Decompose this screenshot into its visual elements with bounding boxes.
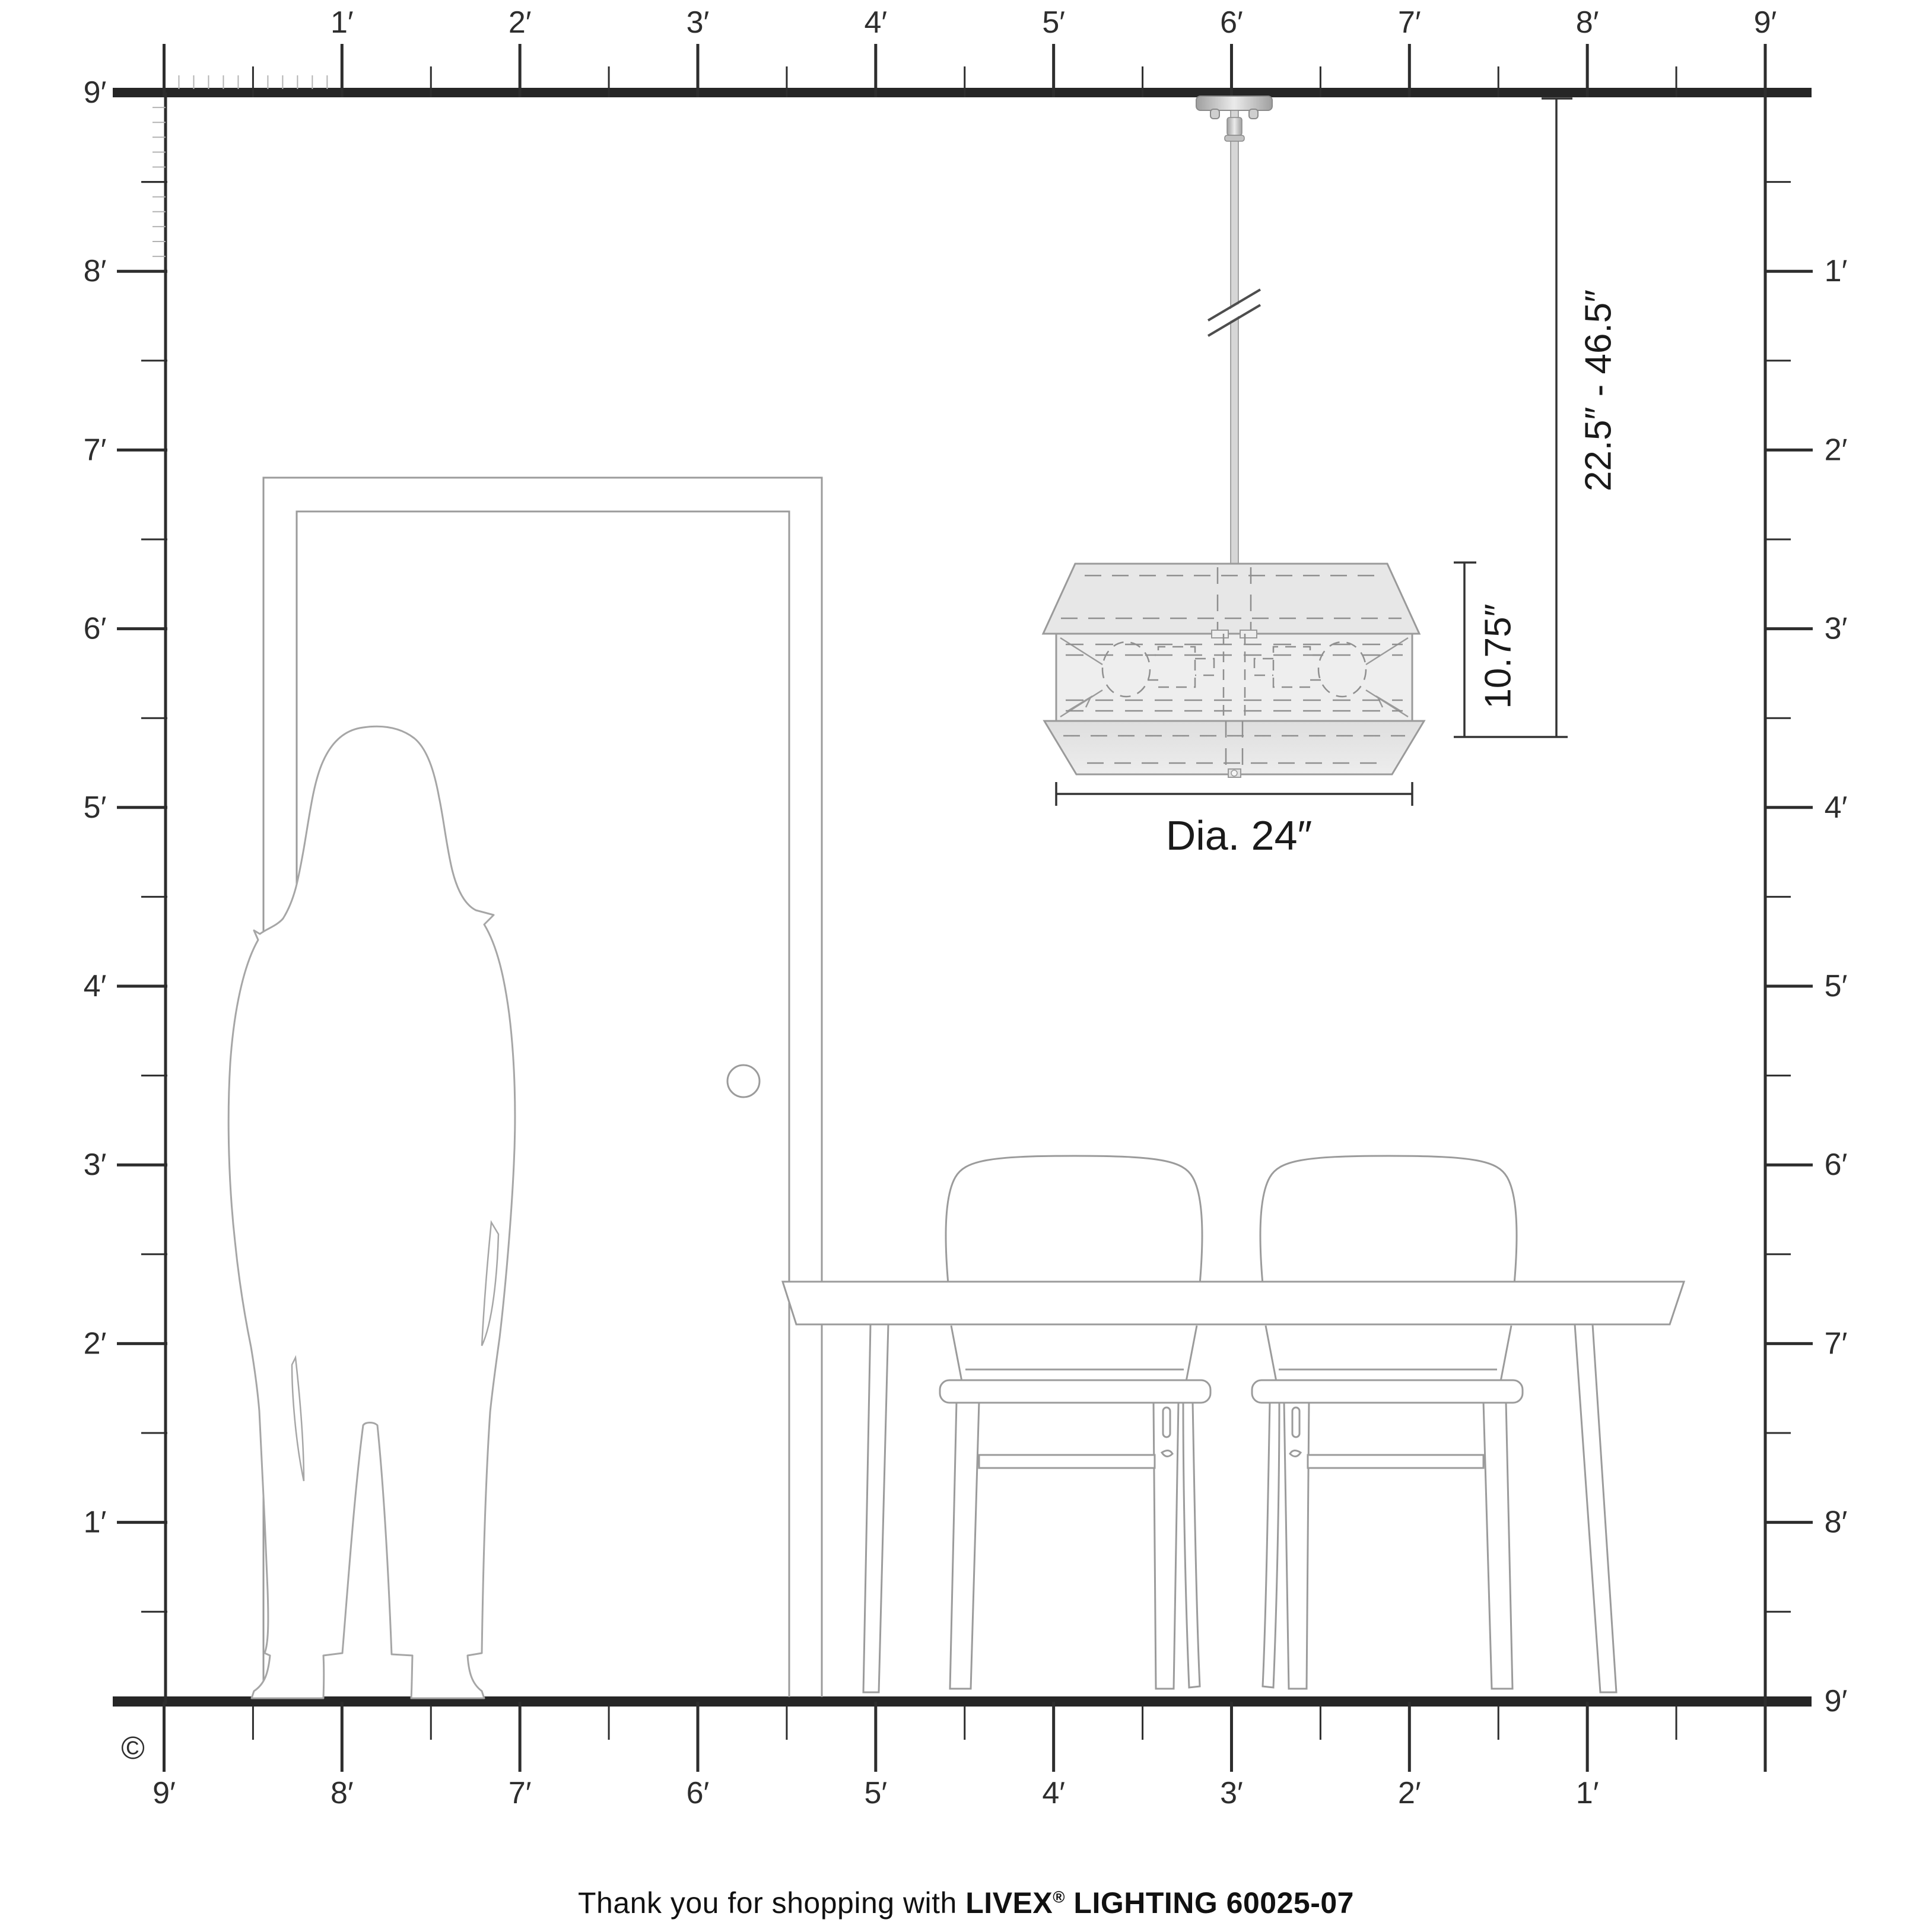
woman-outline — [228, 726, 515, 1698]
top-ruler-label-8: 8′ — [1576, 5, 1599, 40]
left-ruler-label-7: 7′ — [84, 433, 107, 467]
door-knob — [727, 1065, 760, 1097]
right-ruler-label-7: 7′ — [1825, 1326, 1848, 1361]
top-ruler-label-7: 7′ — [1398, 5, 1421, 40]
bottom-ruler-label-4: 4′ — [1042, 1776, 1065, 1810]
canopy — [1196, 96, 1272, 110]
right-ruler-label-5: 5′ — [1825, 969, 1848, 1003]
dining-table — [783, 1282, 1684, 1692]
table-leg-left — [863, 1324, 888, 1692]
top-ruler-label-1: 1′ — [331, 5, 354, 40]
top-ruler-label-5: 5′ — [1042, 5, 1065, 40]
left-ruler-label-4: 4′ — [84, 969, 107, 1003]
right-ruler-label-8: 8′ — [1825, 1505, 1848, 1540]
top-ruler-label-4: 4′ — [864, 5, 887, 40]
bottom-ruler-label-6: 6′ — [687, 1776, 710, 1810]
spec-sheet: 1′2′3′4′5′6′7′8′9′9′8′7′6′5′4′3′2′1′1′2′… — [0, 0, 1932, 1932]
right-ruler-label-9: 9′ — [1825, 1684, 1848, 1718]
bottom-ruler-label-1: 1′ — [1576, 1776, 1599, 1810]
bottom-ruler-label-5: 5′ — [864, 1776, 887, 1810]
chair-left — [940, 1156, 1210, 1689]
bottom-ruler-label-2: 2′ — [1398, 1776, 1421, 1810]
dim-hang-range-label: 22.5″ - 46.5″ — [1578, 290, 1619, 491]
downrod — [1231, 110, 1238, 635]
left-ruler-label-2: 2′ — [84, 1326, 107, 1361]
shade-band — [1056, 634, 1412, 721]
dim-fixture-height-label: 10.75″ — [1478, 603, 1519, 708]
left-ruler-label-1: 1′ — [84, 1505, 107, 1540]
footer-brand: LIVEX — [965, 1886, 1053, 1920]
right-ruler-label-2: 2′ — [1825, 433, 1848, 467]
right-ruler-label-6: 6′ — [1825, 1148, 1848, 1182]
canopy-nub-right — [1249, 109, 1258, 119]
room-scale-diagram: 1′2′3′4′5′6′7′8′9′9′8′7′6′5′4′3′2′1′1′2′… — [0, 0, 1932, 1932]
left-ruler-label-8: 8′ — [84, 254, 107, 288]
pendant-fixture — [1043, 96, 1424, 777]
ceiling-line — [113, 88, 1812, 97]
dim-diameter-label: Dia. 24″ — [1166, 812, 1313, 859]
copyright-symbol: © — [121, 1730, 145, 1766]
bottom-ruler-label-3: 3′ — [1220, 1776, 1243, 1810]
right-ruler-label-4: 4′ — [1825, 790, 1848, 825]
left-ruler-label-3: 3′ — [84, 1148, 107, 1182]
rod-ring — [1225, 135, 1244, 141]
floor-line — [113, 1696, 1812, 1707]
band-tab-right — [1240, 630, 1257, 638]
footer-thanks-text: Thank you for shopping with — [578, 1886, 965, 1920]
finial-ball — [1231, 770, 1237, 776]
bottom-ruler-label-9: 9′ — [152, 1776, 176, 1810]
left-ruler-label-9: 9′ — [84, 75, 107, 110]
right-ruler-label-3: 3′ — [1825, 612, 1848, 646]
chair-right — [1252, 1156, 1523, 1689]
bottom-ruler-label-8: 8′ — [331, 1776, 354, 1810]
woman-silhouette — [228, 726, 515, 1698]
bottom-ruler-label-7: 7′ — [509, 1776, 532, 1810]
rod-collar — [1227, 117, 1242, 135]
shade-lower-fin — [1044, 721, 1424, 774]
registered-mark: ® — [1053, 1887, 1065, 1906]
top-ruler-label-9: 9′ — [1754, 5, 1777, 40]
shade-upper-fin — [1043, 564, 1419, 634]
right-ruler-label-1: 1′ — [1825, 254, 1848, 288]
table-leg-right — [1575, 1324, 1616, 1692]
left-ruler-label-5: 5′ — [84, 790, 107, 825]
footer: Thank you for shopping with LIVEX® LIGHT… — [0, 1886, 1932, 1920]
top-ruler-label-6: 6′ — [1220, 5, 1243, 40]
band-tab-left — [1212, 630, 1228, 638]
left-ruler-label-6: 6′ — [84, 612, 107, 646]
top-ruler-label-3: 3′ — [687, 5, 710, 40]
footer-product-number: LIGHTING 60025-07 — [1065, 1886, 1354, 1920]
top-ruler-label-2: 2′ — [509, 5, 532, 40]
table-top — [783, 1282, 1684, 1324]
canopy-nub-left — [1210, 109, 1219, 119]
